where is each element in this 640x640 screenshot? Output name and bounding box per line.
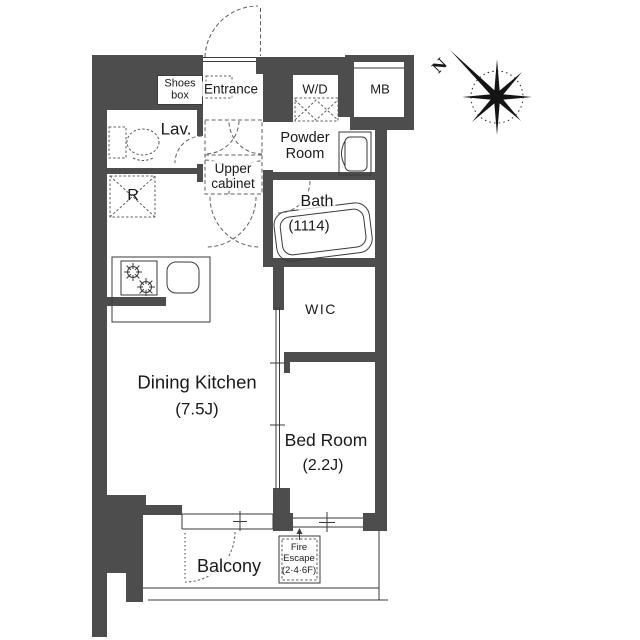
stove-burner-icon	[124, 263, 155, 296]
balcony-railing	[143, 531, 388, 600]
sliding-door	[270, 307, 285, 489]
label-fire-escape: Fire Escape (2·4·6F)	[282, 542, 316, 576]
label-powder-room: Powder Room	[280, 130, 329, 162]
label-refrigerator: R	[127, 187, 139, 205]
label-bath-size: (1114)	[286, 219, 331, 236]
floor-plan: Shoes box Entrance W/D MB Lav. Powder Ro…	[0, 0, 640, 640]
label-lavatory: Lav.	[161, 119, 192, 138]
label-dining-kitchen-size: (7.5J)	[175, 399, 218, 418]
toilet-icon	[109, 127, 159, 161]
label-bed-room-size: (2.2J)	[303, 457, 344, 475]
label-meter-box: MB	[370, 83, 390, 98]
balcony-patio-window	[182, 511, 273, 531]
label-bed-room: Bed Room	[285, 431, 368, 451]
washbasin-icon	[339, 132, 371, 175]
washer-dryer-bifold-door	[295, 98, 338, 121]
label-bath: Bath	[299, 193, 336, 211]
label-dining-kitchen: Dining Kitchen	[137, 373, 256, 394]
label-shoes-box: Shoes box	[164, 78, 195, 103]
label-balcony: Balcony	[195, 556, 263, 576]
walls	[92, 55, 414, 637]
kitchen-counter	[112, 257, 210, 322]
bedroom-window	[293, 512, 363, 532]
entrance-threshold	[203, 58, 256, 62]
lav-door-arc	[175, 136, 202, 163]
compass-icon	[450, 50, 532, 135]
label-entrance: Entrance	[202, 81, 260, 96]
label-washer-dryer: W/D	[302, 83, 327, 98]
label-wic: WIC	[305, 302, 337, 318]
label-upper-cabinet: Upper cabinet	[209, 161, 257, 191]
hallway-door-arcs	[206, 197, 260, 247]
entrance-door-arc	[205, 6, 261, 57]
